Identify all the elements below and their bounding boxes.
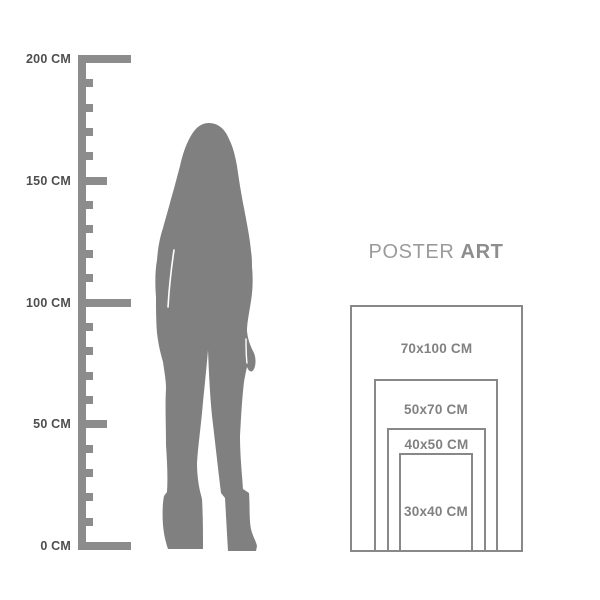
poster-size-guide: 200 CM150 CM100 CM50 CM0 CM POSTER ART 7…: [0, 0, 600, 600]
size-frame-30x40: 30x40 CM: [399, 453, 473, 552]
size-frame-label: 40x50 CM: [389, 438, 484, 452]
size-frame-label: 70x100 CM: [352, 342, 521, 356]
poster-size-chart: 70x100 CM50x70 CM40x50 CM30x40 CM: [0, 0, 600, 600]
size-frame-label: 50x70 CM: [376, 403, 496, 417]
size-frame-label: 30x40 CM: [401, 505, 471, 519]
